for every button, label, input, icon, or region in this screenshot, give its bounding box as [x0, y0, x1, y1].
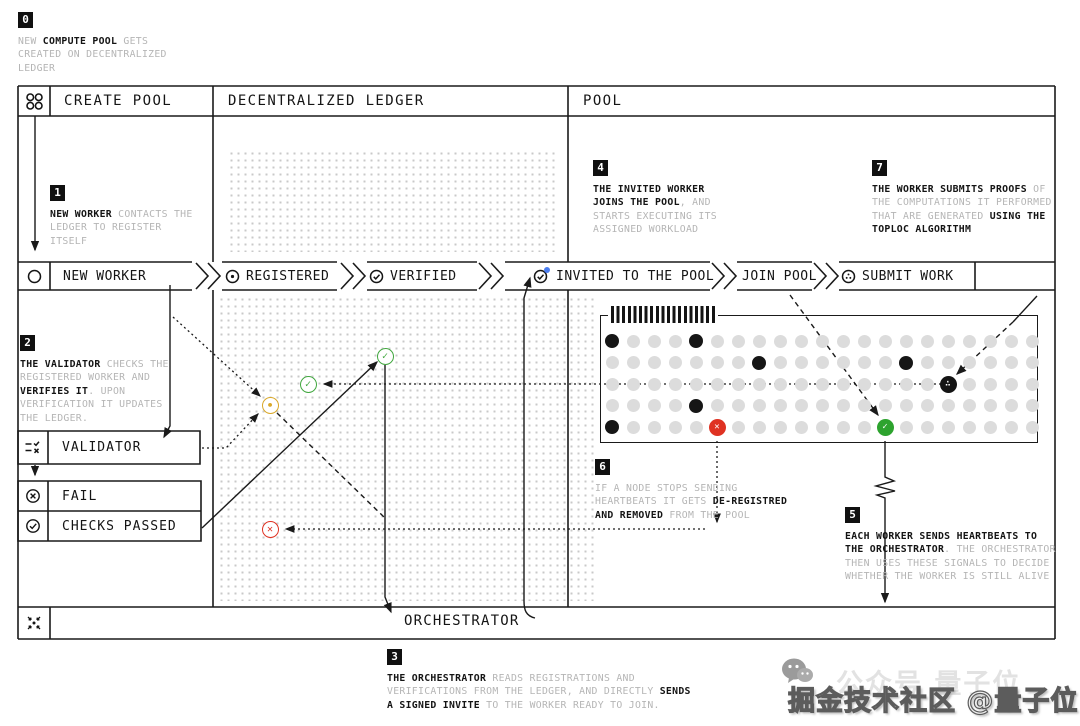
active-worker-node	[689, 334, 703, 348]
idle-worker-node	[921, 399, 934, 412]
idle-worker-node	[774, 335, 787, 348]
idle-worker-node	[732, 399, 745, 412]
active-worker-node	[605, 334, 619, 348]
band-step-submit-work: SUBMIT WORK	[839, 262, 975, 290]
idle-worker-node	[795, 335, 808, 348]
fail-cross-circle-icon	[18, 481, 48, 511]
idle-worker-node	[690, 356, 703, 369]
idle-worker-node	[648, 335, 661, 348]
idle-worker-node	[753, 421, 766, 434]
idle-worker-node	[711, 399, 724, 412]
annotation-step6: 6 IF A NODE STOPS SENDING HEARTBEATS IT …	[595, 455, 787, 522]
annotation-step5: 5 EACH WORKER SENDS HEARTBEATS TO THE OR…	[845, 503, 1056, 584]
band-step-registered: REGISTERED	[222, 262, 337, 290]
idle-worker-node	[816, 421, 829, 434]
alive-node: ✓	[877, 419, 894, 436]
idle-worker-node	[627, 378, 640, 391]
fail-box-label: FAIL	[62, 489, 97, 504]
idle-worker-node	[837, 421, 850, 434]
idle-worker-node	[711, 356, 724, 369]
idle-worker-node	[1005, 378, 1018, 391]
idle-worker-node	[774, 399, 787, 412]
idle-worker-node	[795, 421, 808, 434]
idle-worker-node	[732, 356, 745, 369]
step-badge: 3	[387, 649, 402, 665]
idle-worker-node	[669, 399, 682, 412]
orchestrator-converge-icon	[18, 607, 50, 639]
idle-worker-node	[1026, 378, 1039, 391]
idle-worker-node	[942, 421, 955, 434]
create-pool-icon	[18, 86, 50, 116]
annotation-step2: 2 THE VALIDATOR CHECKS THE REGISTERED WO…	[20, 331, 169, 425]
idle-worker-node	[732, 378, 745, 391]
idle-worker-node	[963, 335, 976, 348]
idle-worker-node	[900, 421, 913, 434]
band-label: REGISTERED	[246, 269, 329, 284]
registered-dot-circle-icon	[225, 269, 240, 284]
idle-worker-node	[816, 399, 829, 412]
idle-worker-node	[795, 399, 808, 412]
step-badge: 5	[845, 507, 860, 523]
idle-worker-node	[1005, 421, 1018, 434]
idle-worker-node	[858, 378, 871, 391]
header-decentralized-ledger: DECENTRALIZED LEDGER	[228, 93, 425, 109]
idle-worker-node	[984, 356, 997, 369]
idle-worker-node	[816, 378, 829, 391]
band-label: VERIFIED	[390, 269, 457, 284]
idle-worker-node	[732, 335, 745, 348]
idle-worker-node	[963, 399, 976, 412]
idle-worker-node	[900, 378, 913, 391]
idle-worker-node	[774, 378, 787, 391]
idle-worker-node	[963, 421, 976, 434]
validator-box-label: VALIDATOR	[62, 440, 141, 455]
checks-passed-box-label: CHECKS PASSED	[62, 519, 177, 534]
idle-worker-node	[942, 399, 955, 412]
annotation-step4: 4 THE INVITED WORKER JOINS THE POOL, AND…	[593, 156, 717, 237]
idle-worker-node	[732, 421, 745, 434]
idle-worker-node	[963, 378, 976, 391]
idle-worker-node	[753, 378, 766, 391]
header-pool: POOL	[583, 93, 622, 109]
idle-worker-node	[669, 421, 682, 434]
idle-worker-node	[921, 356, 934, 369]
failed-mark: ✕	[262, 521, 279, 538]
band-step-new-worker: NEW WORKER	[18, 262, 192, 290]
de-registered-node: ✕	[709, 419, 726, 436]
idle-worker-node	[984, 421, 997, 434]
idle-worker-node	[963, 356, 976, 369]
band-step-join-pool: JOIN POOL	[737, 262, 815, 290]
verified-mark: ✓	[377, 348, 394, 365]
idle-worker-node	[984, 335, 997, 348]
active-worker-node	[752, 356, 766, 370]
active-worker-node	[899, 356, 913, 370]
idle-worker-node	[837, 335, 850, 348]
idle-worker-node	[669, 356, 682, 369]
idle-worker-node	[648, 399, 661, 412]
idle-worker-node	[774, 356, 787, 369]
step-text: EACH WORKER SENDS HEARTBEATS TO THE ORCH…	[845, 530, 1056, 584]
ledger-dot-pattern-top	[228, 150, 558, 252]
idle-worker-node	[648, 378, 661, 391]
idle-worker-node	[921, 335, 934, 348]
idle-worker-node	[795, 356, 808, 369]
step-badge: 1	[50, 185, 65, 201]
step-text: THE INVITED WORKER JOINS THE POOL, AND S…	[593, 183, 717, 237]
band-step-invited: INVITED TO THE POOL	[507, 262, 710, 290]
idle-worker-node	[711, 378, 724, 391]
idle-worker-node	[879, 356, 892, 369]
verified-check-circle-icon	[369, 269, 384, 284]
band-label: INVITED TO THE POOL	[556, 269, 714, 284]
idle-worker-node	[690, 421, 703, 434]
idle-worker-node	[627, 421, 640, 434]
band-label: NEW WORKER	[63, 269, 146, 284]
active-worker-node	[689, 399, 703, 413]
idle-worker-node	[690, 378, 703, 391]
validator-checklist-icon	[18, 431, 48, 464]
step-badge: 0	[18, 12, 33, 28]
idle-worker-node	[1026, 356, 1039, 369]
idle-worker-node	[795, 378, 808, 391]
idle-worker-node	[858, 421, 871, 434]
idle-worker-node	[1026, 399, 1039, 412]
idle-worker-node	[942, 356, 955, 369]
idle-worker-node	[669, 378, 682, 391]
idle-worker-node	[1005, 399, 1018, 412]
idle-worker-node	[921, 378, 934, 391]
idle-worker-node	[984, 378, 997, 391]
step-badge: 6	[595, 459, 610, 475]
idle-worker-node	[606, 399, 619, 412]
header-create-pool: CREATE POOL	[64, 93, 172, 109]
idle-worker-node	[627, 335, 640, 348]
idle-worker-node	[753, 335, 766, 348]
annotation-step3: 3 THE ORCHESTRATOR READS REGISTRATIONS A…	[387, 645, 691, 712]
submitting-work-node: ∴	[940, 376, 957, 393]
ledger-dot-pattern-main	[218, 296, 596, 601]
idle-worker-node	[753, 399, 766, 412]
idle-worker-node	[774, 421, 787, 434]
idle-worker-node	[837, 378, 850, 391]
idle-worker-node	[627, 399, 640, 412]
idle-worker-node	[900, 399, 913, 412]
idle-worker-node	[1026, 335, 1039, 348]
idle-worker-node	[837, 356, 850, 369]
idle-worker-node	[1005, 335, 1018, 348]
idle-worker-node	[816, 356, 829, 369]
idle-worker-node	[858, 356, 871, 369]
annotation-step1: 1 NEW WORKER CONTACTS THE LEDGER TO REGI…	[50, 181, 193, 248]
idle-worker-node	[669, 335, 682, 348]
orchestrator-label: ORCHESTRATOR	[404, 613, 520, 629]
idle-worker-node	[1026, 421, 1039, 434]
step-text: IF A NODE STOPS SENDING HEARTBEATS IT GE…	[595, 482, 787, 522]
idle-worker-node	[858, 399, 871, 412]
idle-worker-node	[606, 356, 619, 369]
step-text: THE WORKER SUBMITS PROOFS OF THE COMPUTA…	[872, 183, 1052, 237]
verified-mark: ✓	[300, 376, 317, 393]
idle-worker-node	[879, 399, 892, 412]
step-text: THE ORCHESTRATOR READS REGISTRATIONS AND…	[387, 672, 691, 712]
annotation-step7: 7 THE WORKER SUBMITS PROOFS OF THE COMPU…	[872, 156, 1052, 237]
step-badge: 4	[593, 160, 608, 176]
step-text: THE VALIDATOR CHECKS THE REGISTERED WORK…	[20, 358, 169, 425]
idle-worker-node	[900, 335, 913, 348]
idle-worker-node	[858, 335, 871, 348]
submit-work-circle-icon	[841, 269, 856, 284]
check-pending-mark: •	[262, 397, 279, 414]
idle-worker-node	[627, 356, 640, 369]
idle-worker-node	[879, 378, 892, 391]
step-badge: 7	[872, 160, 887, 176]
step-badge: 2	[20, 335, 35, 351]
idle-worker-node	[837, 399, 850, 412]
idle-worker-node	[942, 335, 955, 348]
invited-check-circle-icon	[533, 269, 548, 284]
idle-worker-node	[921, 421, 934, 434]
checks-passed-check-circle-icon	[18, 511, 48, 541]
band-label: SUBMIT WORK	[862, 269, 954, 284]
idle-worker-node	[648, 356, 661, 369]
annotation-step0: 0 NEW COMPUTE POOL GETS CREATED ON DECEN…	[18, 8, 167, 75]
watermark-main: 掘金技术社区 @量子位	[788, 679, 1078, 718]
idle-worker-node	[879, 335, 892, 348]
idle-worker-node	[984, 399, 997, 412]
barcode	[608, 306, 718, 323]
notification-dot	[544, 267, 550, 273]
idle-worker-node	[648, 421, 661, 434]
step-text: NEW WORKER CONTACTS THE LEDGER TO REGIST…	[50, 208, 193, 248]
idle-worker-node	[816, 335, 829, 348]
idle-worker-node	[606, 378, 619, 391]
worker-circle-icon	[18, 269, 50, 284]
active-worker-node	[605, 420, 619, 434]
band-step-verified: VERIFIED	[367, 262, 477, 290]
idle-worker-node	[1005, 356, 1018, 369]
idle-worker-node	[711, 335, 724, 348]
band-label: JOIN POOL	[742, 269, 817, 284]
step-text: NEW COMPUTE POOL GETS CREATED ON DECENTR…	[18, 35, 167, 75]
